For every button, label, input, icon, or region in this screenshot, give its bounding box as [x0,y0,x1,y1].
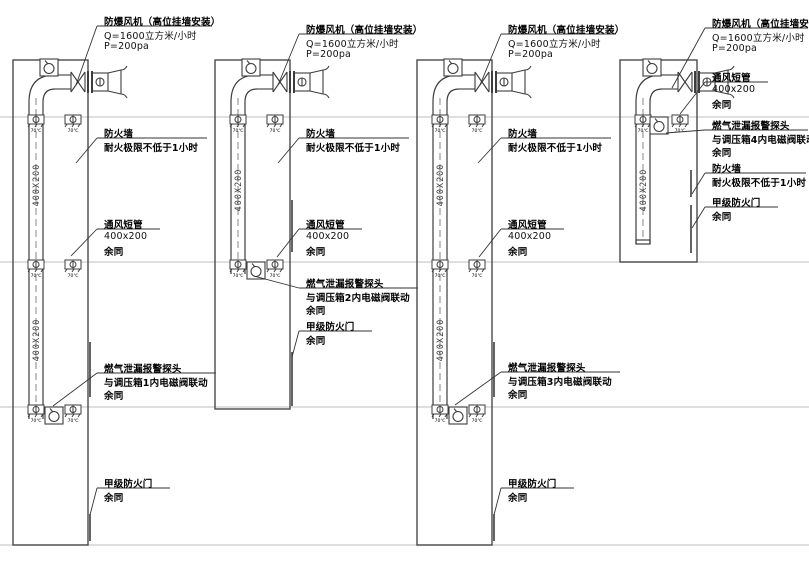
shaft4-fan-flow: Q=1600立方米/小时 [712,30,805,44]
shaft1-firewall-label: 防火墙 [104,126,133,140]
fire-damper-icon [432,405,448,424]
shaft1-vent-size: 400x200 [104,231,147,242]
shaft1-door-label: 甲级防火门 [104,476,153,490]
fire-damper-icon [230,115,246,134]
shaft4-door-label: 甲级防火门 [712,195,761,209]
shaft4-gas-same: 余同 [712,145,731,159]
shaft3-firewall-label: 防火墙 [508,126,537,140]
shaft3-gas-same: 余同 [508,387,527,401]
duct-size-label: 400X200 [436,319,446,362]
shaft4-gas-note: 与调压箱4内电磁阀联动 [712,132,809,146]
shaft2-firewall-label: 防火墙 [306,126,335,140]
shaft-3: 400X200 400X200 [417,34,620,545]
shaft2-gas-label: 燃气泄漏报警探头 [306,276,384,290]
shaft3-fan-label: 防爆风机（高位挂墙安装） [508,22,624,36]
duct-size-label: 400X200 [32,164,42,207]
shaft4-door-same: 余同 [712,209,731,223]
gas-detector-icon [242,59,260,76]
shaft1-gas-note: 与调压箱1内电磁阀联动 [104,375,208,389]
shaft3-vent-label: 通风短管 [508,217,547,231]
shaft3-firewall-note: 耐火极限不低于1小时 [508,140,602,154]
shaft4-vent-label: 通风短管 [712,70,751,84]
shaft2-door-label: 甲级防火门 [306,319,355,333]
shaft1-firewall-note: 耐火极限不低于1小时 [104,140,198,154]
fire-damper-icon [469,260,485,279]
gas-detector-icon [449,407,467,424]
shaft1-fan-label: 防爆风机（高位挂墙安装） [104,14,220,28]
fire-damper-icon [28,260,44,279]
fan-assembly-icon [459,66,531,98]
gas-detector-icon [643,59,661,76]
fire-damper-icon [635,115,651,134]
shaft1-gas-same: 余同 [104,388,123,402]
shaft3-door-same: 余同 [508,490,527,504]
fan-assembly-icon [55,66,127,98]
shaft1-fan-flow: Q=1600立方米/小时 [104,28,197,42]
shaft2-vent-label: 通风短管 [306,217,345,231]
shaft4-gas-label: 燃气泄漏报警探头 [712,118,790,132]
ventilation-elevation-drawing: 70℃ [0,0,809,581]
gas-detector-icon [444,59,462,76]
duct-size-label: 400X200 [436,164,446,207]
fire-damper-icon [267,115,283,134]
fire-damper-icon [469,115,485,134]
gas-detector-icon [40,59,58,76]
shaft3-gas-label: 燃气泄漏报警探头 [508,360,586,374]
shaft2-vent-note: 余同 [306,244,325,258]
shaft2-fan-pressure: P=200pa [306,49,351,60]
shaft3-door-label: 甲级防火门 [508,476,557,490]
shaft2-vent-size: 400x200 [306,231,349,242]
shaft4-firewall-label: 防火墙 [712,161,741,175]
shaft2-door-same: 余同 [306,333,325,347]
fire-damper-icon [65,115,81,134]
fire-damper-icon [230,260,246,279]
shaft4-vent-note: 余同 [712,97,731,111]
duct-size-label: 400X200 [32,319,42,362]
shaft3-gas-note: 与调压箱3内电磁阀联动 [508,374,612,388]
shaft1-vent-label: 通风短管 [104,217,143,231]
shaft2-gas-same: 余同 [306,303,325,317]
fire-damper-icon [432,115,448,134]
shaft3-fan-pressure: P=200pa [508,49,553,60]
shaft3-fan-flow: Q=1600立方米/小时 [508,36,601,50]
shaft4-fan-pressure: P=200pa [712,43,757,54]
leader-lines [254,34,418,357]
fire-damper-icon [432,260,448,279]
shaft1-fan-pressure: P=200pa [104,41,149,52]
fire-damper-icon [65,260,81,279]
shaft2-fan-label: 防爆风机（高位挂墙安装） [306,22,422,36]
shaft2-fan-flow: Q=1600立方米/小时 [306,36,399,50]
shaft3-vent-size: 400x200 [508,231,551,242]
duct-size-label: 400X200 [234,169,244,212]
shaft1-vent-note: 余同 [104,244,123,258]
shaft4-firewall-note: 耐火极限不低于1小时 [712,175,806,189]
fire-damper-icon [469,405,485,424]
shaft4-vent-size: 400x200 [712,84,755,95]
shaft1-door-same: 余同 [104,490,123,504]
shaft2-firewall-note: 耐火极限不低于1小时 [306,140,400,154]
shaft3-vent-note: 余同 [508,244,527,258]
shaft2-gas-note: 与调压箱2内电磁阀联动 [306,290,410,304]
shaft1-gas-label: 燃气泄漏报警探头 [104,361,182,375]
shaft4-fan-label: 防爆风机（高位挂墙安装） [712,16,809,30]
gas-detector-icon [650,117,668,134]
leader-lines [53,26,216,515]
fire-damper-icon [28,115,44,134]
fan-assembly-icon [257,66,329,98]
fire-damper-icon [267,260,283,279]
duct-size-label: 400X200 [639,169,649,212]
fire-damper-icon [28,405,44,424]
gas-detector-icon [45,407,63,424]
fire-damper-icon [65,405,81,424]
shaft-1: 400X200 400X200 [13,26,216,545]
